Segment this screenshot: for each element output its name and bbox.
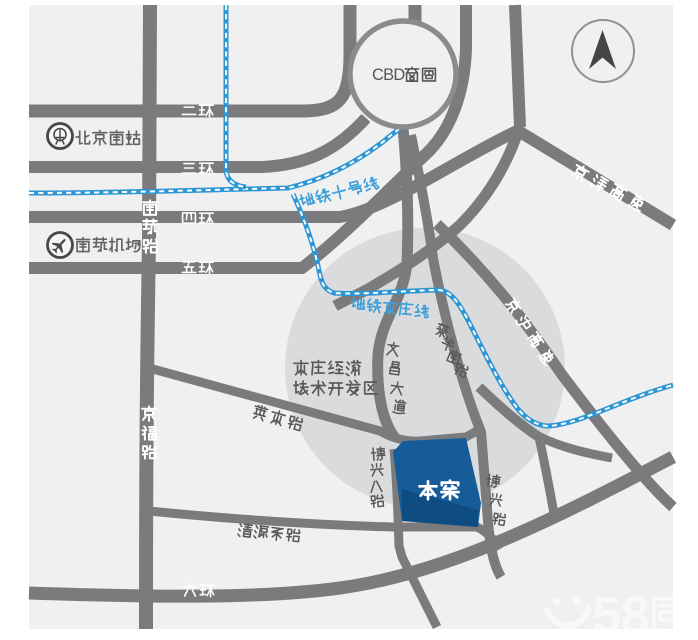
svg-text:CBD: CBD xyxy=(372,66,405,84)
